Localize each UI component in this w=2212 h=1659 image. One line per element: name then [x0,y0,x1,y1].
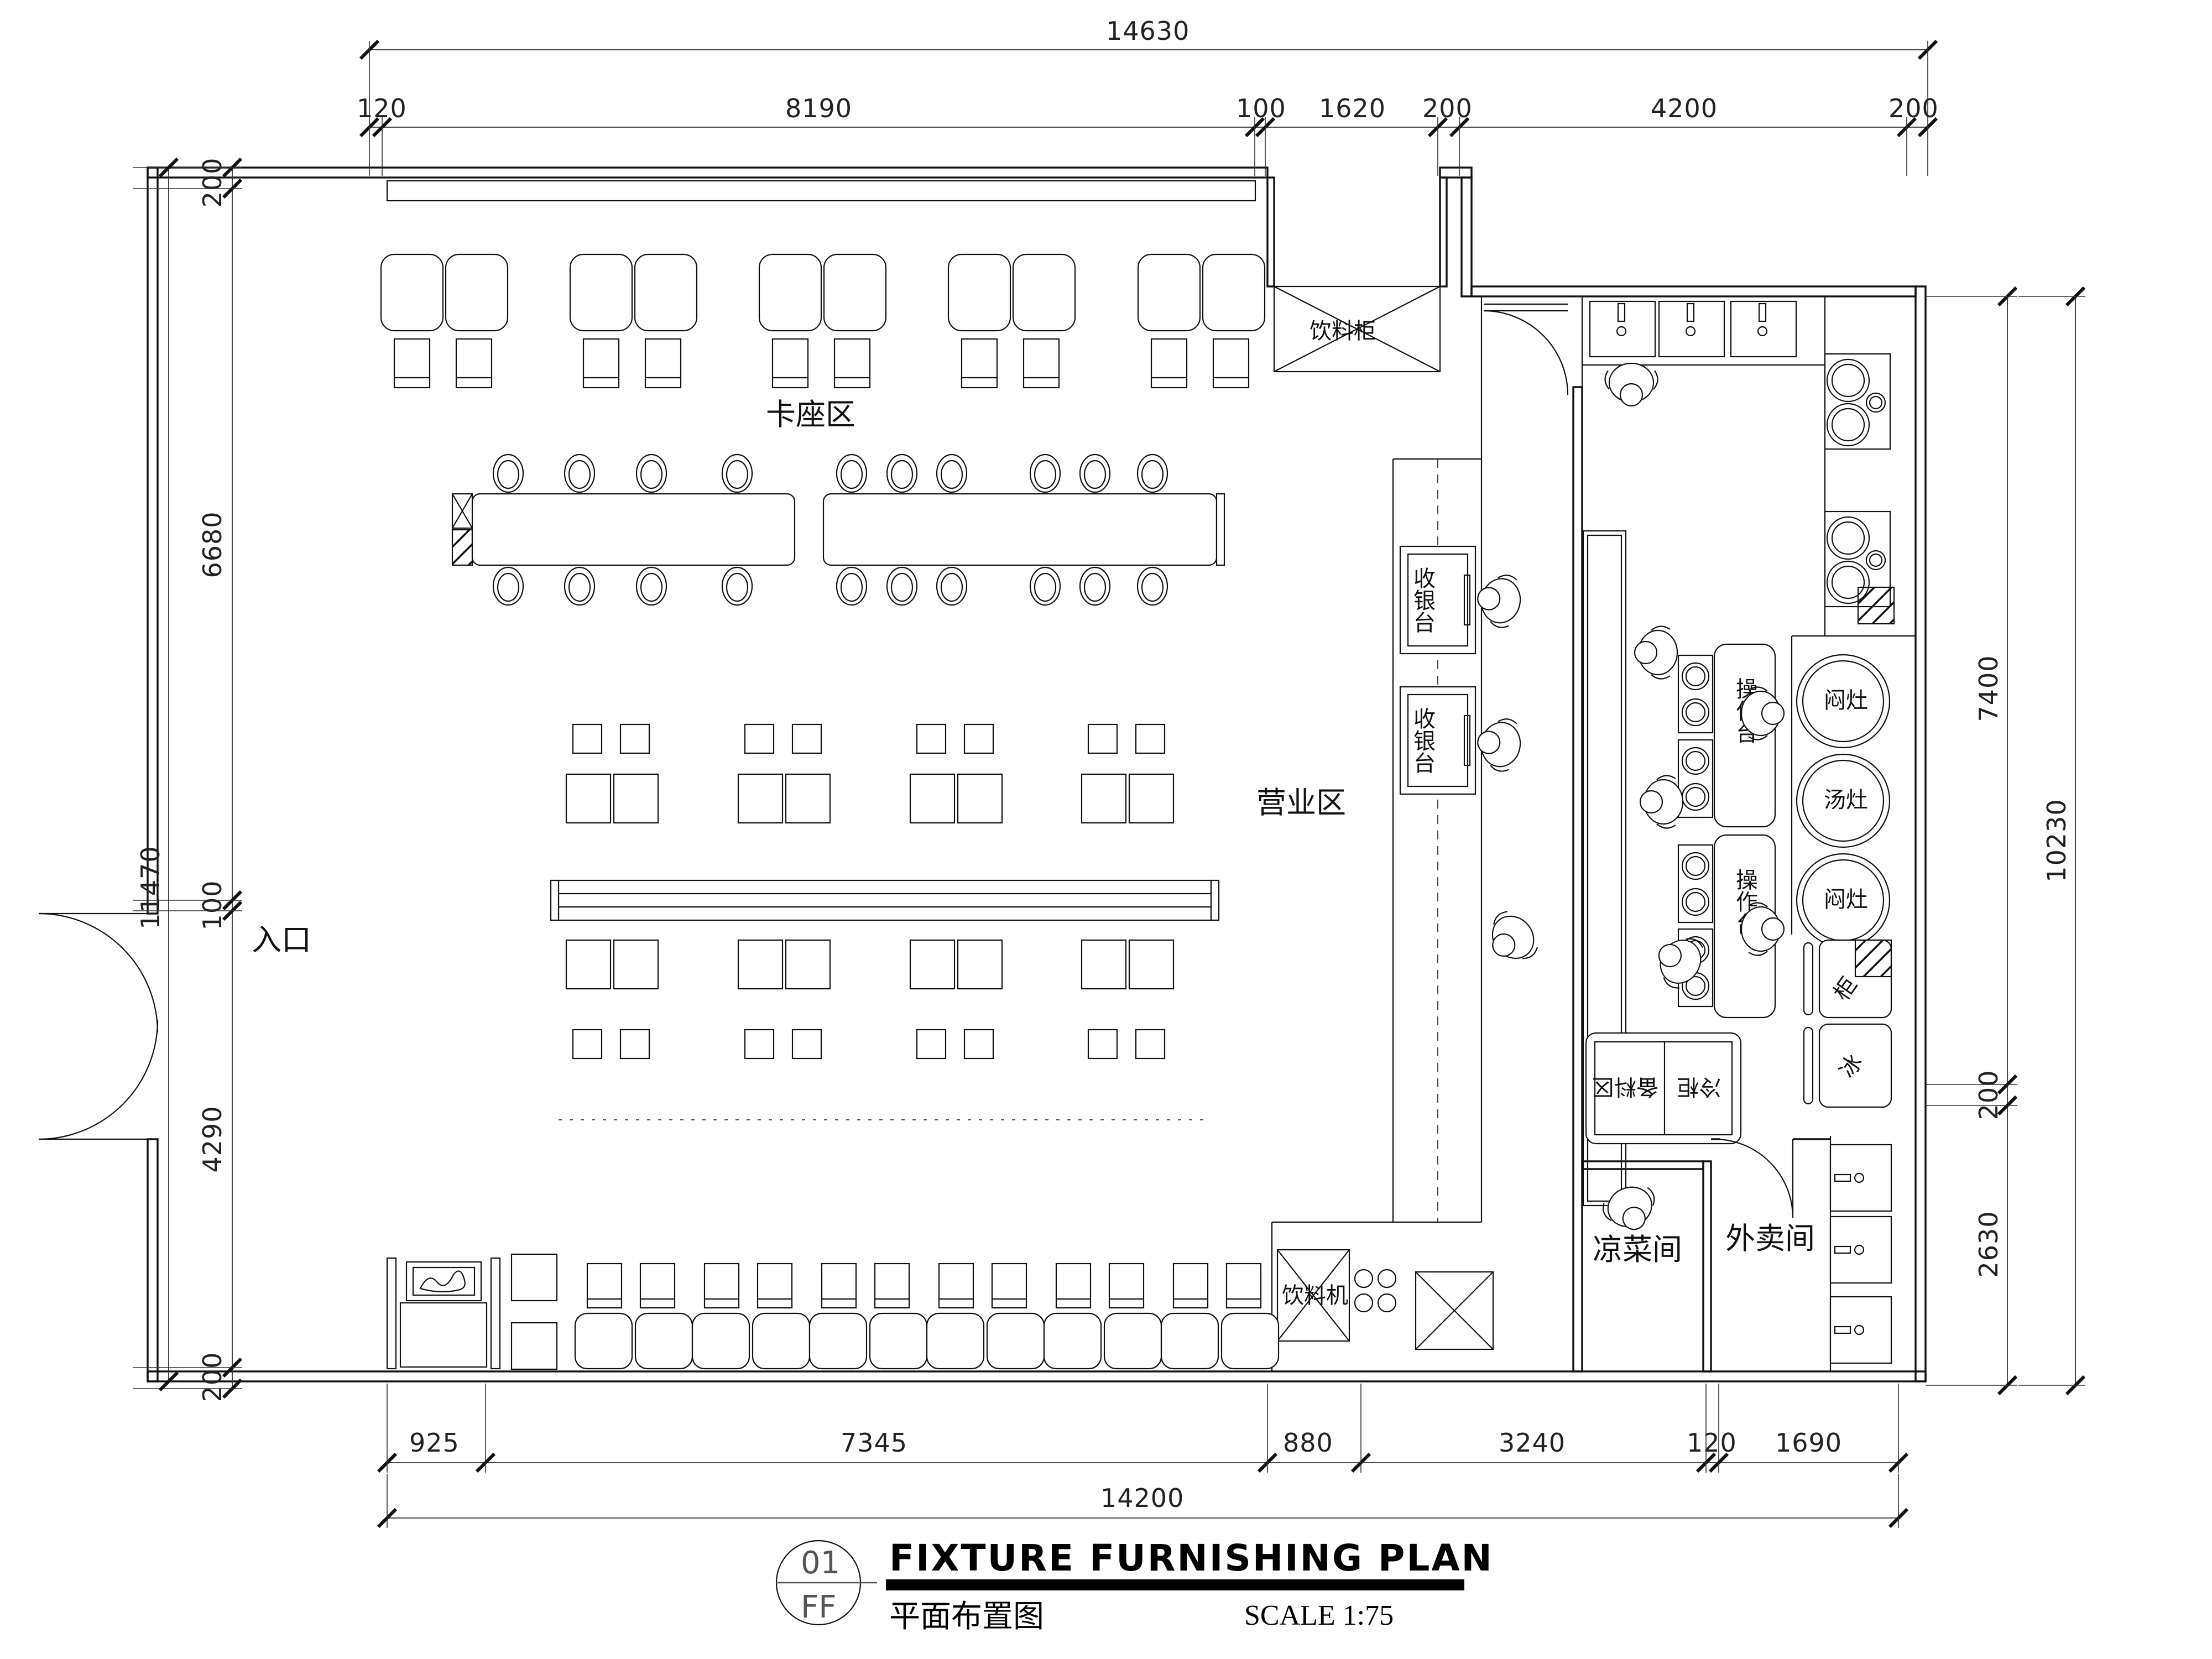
bthT-symbol [1213,339,1249,388]
dim-bottom-2: 880 [1283,1428,1333,1458]
stool-symbol [917,1030,946,1058]
dim-right-0: 7400 [1974,655,2004,722]
stool-symbol [1088,1030,1117,1058]
burn-symbol [1678,740,1713,817]
entrance-label: 入口 [252,922,311,957]
sofaB-symbol [753,1313,810,1369]
bthT-symbol [1024,339,1059,388]
stool-symbol [573,724,602,753]
sofaB-symbol [987,1313,1044,1369]
sofaV-symbol [1138,254,1200,331]
sqc-symbol [958,774,1002,823]
chair-symbol [1080,567,1110,605]
stool-symbol [1088,724,1117,753]
stool-symbol [964,1030,993,1058]
dim-left-0: 200 [197,158,227,208]
dim-top-4: 200 [1422,93,1473,123]
dim-left-2: 100 [197,880,227,931]
sheet-scale: SCALE 1:75 [1244,1600,1394,1631]
sqc-symbol [786,940,830,989]
chair-symbol [1080,455,1110,492]
dim-top-5: 4200 [1651,93,1718,123]
sqc-symbol [786,774,830,823]
sofaV-symbol [948,254,1010,331]
bthT-symbol [394,339,430,388]
dim-top-1: 8190 [785,93,852,123]
entrance-door [39,914,158,1139]
sofaV-symbol [1203,254,1265,331]
dim-right-2: 2630 [1974,1211,2004,1277]
sqc-symbol [566,940,611,989]
person-symbol [1635,626,1677,679]
stool-symbol [964,724,993,753]
booth-zone-label: 卡座区 [766,397,855,432]
sofaB-symbol [1044,1313,1101,1369]
stool-symbol [1136,1030,1165,1058]
sofaB-symbol [1104,1313,1161,1369]
chair-symbol [1030,455,1060,492]
floor-unit [1416,1272,1493,1349]
cashier-2-label: 收银台 [1410,707,1435,774]
chair-symbol [493,567,523,605]
sqc-symbol [1082,940,1126,989]
sofaV-symbol [824,254,886,331]
bthT-symbol [645,339,681,388]
sqc-symbol [738,774,782,823]
stool-symbol [1136,724,1165,753]
takeout-room-label: 外卖间 [1725,1221,1815,1256]
chair-symbol [937,567,967,605]
bthT-symbol [773,339,808,388]
title-block: 01 FF FIXTURE FURNISHING PLAN 平面布置图 SCAL… [776,1537,1494,1635]
stool-symbol [917,724,946,753]
bT2-symbol [705,1264,739,1308]
sqc-symbol [910,774,954,823]
sqc-symbol [614,940,658,989]
sofaV-symbol [1013,254,1075,331]
dim-left-1: 6680 [197,511,227,578]
bthT-symbol [834,339,870,388]
stool-symbol [573,1030,602,1058]
sqc-symbol [738,940,782,989]
sqc-symbol [1082,774,1126,823]
sheet-number: 01 [801,1545,840,1581]
bthT-symbol [583,339,619,388]
sofaB-symbol [927,1313,984,1369]
sinkR-symbol [1830,1145,1891,1211]
hatched-column [1858,587,1894,624]
chair-symbol [565,567,594,605]
stove-bottom-label: 闷灶 [1824,887,1868,912]
chair-symbol [837,455,867,492]
burn-symbol [1678,655,1713,733]
decor-stand [387,1254,557,1369]
chair-symbol [887,455,917,492]
chair-symbol [493,455,523,492]
sofaB-symbol [870,1313,927,1369]
bT2-symbol [758,1264,792,1308]
bT2-symbol [1109,1264,1144,1308]
beverage-machine-label: 饮料机 [1282,1283,1348,1308]
dim-left-3: 4290 [197,1105,227,1172]
sofaV-symbol [759,254,821,331]
person-symbol [1605,363,1657,406]
burn-symbol [1678,845,1713,922]
stove-top-label: 闷灶 [1824,688,1868,713]
sofaB-symbol [635,1313,692,1369]
sofaB-symbol [575,1313,632,1369]
chair-symbol [1138,567,1167,605]
bthT-symbol [456,339,492,388]
bT2-symbol [1056,1264,1091,1308]
long-table-1 [452,494,795,565]
sqc-symbol [566,774,611,823]
dim-bottom-5: 1690 [1775,1428,1842,1458]
sheet-title-cn: 平面布置图 [889,1599,1044,1635]
sofaV-symbol [635,254,697,331]
dim-left-total: 11470 [135,846,165,929]
sinkT-symbol [1731,301,1796,357]
sofaB-symbol [1222,1313,1279,1369]
sinkT-symbol [1590,301,1655,357]
banquette-bench [387,181,1255,201]
sofaB-symbol [692,1313,749,1369]
chair-symbol [722,567,752,605]
sinkR-symbol [1830,1217,1891,1283]
sqc-symbol [1129,774,1173,823]
service-counter [1272,296,1481,1371]
dim-right-outer-total: 10230 [2042,799,2072,882]
bthT-symbol [1151,339,1187,388]
chair-symbol [722,455,752,492]
person-symbol [1640,775,1683,828]
prep-area-label: 备料区 [1592,1074,1658,1099]
sinkR-symbol [1830,1297,1891,1363]
bT2-symbol [822,1264,856,1308]
chair-symbol [887,567,917,605]
beverage-cabinet-label: 饮料柜 [1310,319,1376,344]
stool-symbol [792,1030,821,1058]
bT2-symbol [587,1264,622,1308]
bT2-symbol [939,1264,973,1308]
stool-symbol [620,1030,649,1058]
sqc-symbol [614,774,658,823]
floor-plan-drawing: 入口 卡座区 营业区 [0,0,2212,1659]
chair-symbol [1030,567,1060,605]
stool-symbol [620,724,649,753]
central-long-table [551,880,1219,1120]
bT2-symbol [992,1264,1026,1308]
sofaV-symbol [381,254,443,331]
stove-mid-label: 汤灶 [1824,787,1868,813]
sqc-symbol [958,940,1002,989]
dim-left-4: 200 [197,1352,227,1402]
title-underline [886,1579,1464,1590]
chair-symbol [1138,455,1167,492]
sheet-code: FF [801,1589,836,1625]
dim-bottom-4: 120 [1687,1428,1737,1458]
dim-bottom-3: 3240 [1499,1428,1566,1458]
bT2-symbol [1227,1264,1261,1308]
wok-symbol [1825,354,1890,449]
bT2-symbol [1173,1264,1208,1308]
sofaV-symbol [446,254,508,331]
sinkT-symbol [1659,301,1724,357]
chair-symbol [837,567,867,605]
chair-symbol [637,455,666,492]
dim-bottom-total: 14200 [1100,1483,1184,1513]
bthT-symbol [962,339,997,388]
stool-symbol [745,1030,774,1058]
sofaB-symbol [810,1313,867,1369]
bT2-symbol [640,1264,675,1308]
sheet-title-en: FIXTURE FURNISHING PLAN [889,1537,1494,1579]
chair-symbol [937,455,967,492]
person-symbol [1478,905,1545,972]
cold-cabinet-label: 冷柜 [1677,1074,1721,1099]
chair-symbol [637,567,666,605]
long-table-2 [823,494,1224,565]
dim-top-total: 14630 [1106,16,1190,46]
cashier-1-label: 收银台 [1410,567,1435,633]
chair-symbol [565,455,594,492]
corridor-door [1484,304,1568,395]
floor-plan-sheet: 入口 卡座区 营业区 [0,0,2212,1659]
stool-symbol [745,724,774,753]
sofaV-symbol [570,254,632,331]
dim-top-3: 1620 [1319,93,1386,123]
sqc-symbol [910,940,954,989]
bT2-symbol [875,1264,909,1308]
dim-bottom-0: 925 [409,1428,460,1458]
stool-symbol [792,724,821,753]
sqc-symbol [1129,940,1173,989]
cold-dish-room-label: 凉菜间 [1593,1232,1682,1267]
dim-bottom-1: 7345 [841,1428,907,1458]
dining-zone-label: 营业区 [1256,785,1346,820]
sofaB-symbol [1161,1313,1218,1369]
